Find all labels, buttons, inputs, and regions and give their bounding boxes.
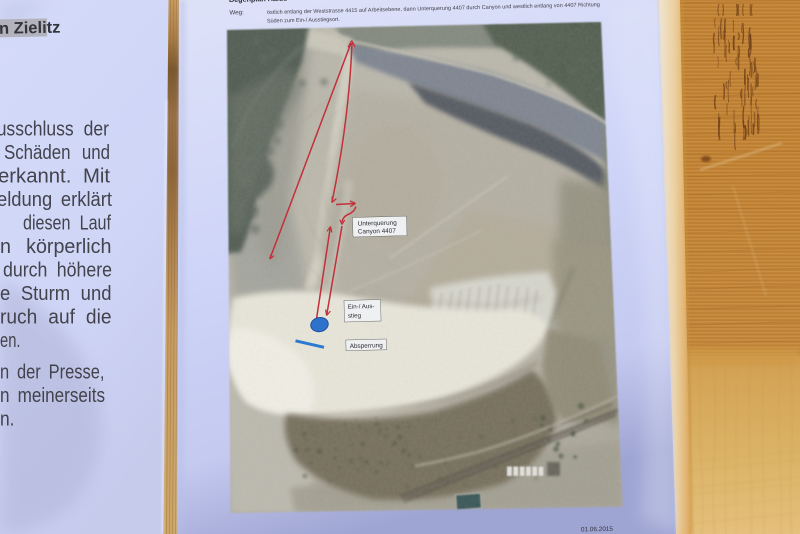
svg-text:Schäden und: Schäden und	[4, 142, 110, 164]
svg-text:n der Presse,: n der Presse,	[0, 361, 105, 383]
svg-text:01.06.2015: 01.06.2015	[581, 526, 614, 534]
svg-text:n.: n.	[0, 408, 15, 430]
svg-text:Ein-/ Aus-: Ein-/ Aus-	[348, 303, 375, 311]
svg-text:Weg:: Weg:	[229, 9, 244, 16]
svg-text:Absperrung: Absperrung	[350, 342, 384, 350]
svg-text:Canyon 4407: Canyon 4407	[358, 228, 397, 236]
svg-text:eldung erklärt: eldung erklärt	[0, 189, 112, 211]
svg-text:n meinerseits: n meinerseits	[0, 385, 105, 407]
svg-text:stieg: stieg	[348, 312, 362, 319]
svg-text:diesen Lauf: diesen Lauf	[23, 212, 111, 234]
svg-text:Unterquerung: Unterquerung	[358, 220, 398, 228]
svg-text:en.: en.	[0, 330, 21, 352]
svg-text:durch höhere: durch höhere	[3, 259, 112, 281]
svg-text:n Zielitz: n Zielitz	[0, 19, 61, 38]
svg-text:Ausschluss der: Ausschluss der	[0, 118, 109, 140]
svg-text:erkannt. Mit: erkannt. Mit	[0, 165, 110, 187]
svg-text:ruch auf die: ruch auf die	[0, 306, 112, 328]
svg-text:n körperlich: n körperlich	[0, 236, 112, 258]
svg-text:e Sturm und: e Sturm und	[0, 283, 112, 305]
